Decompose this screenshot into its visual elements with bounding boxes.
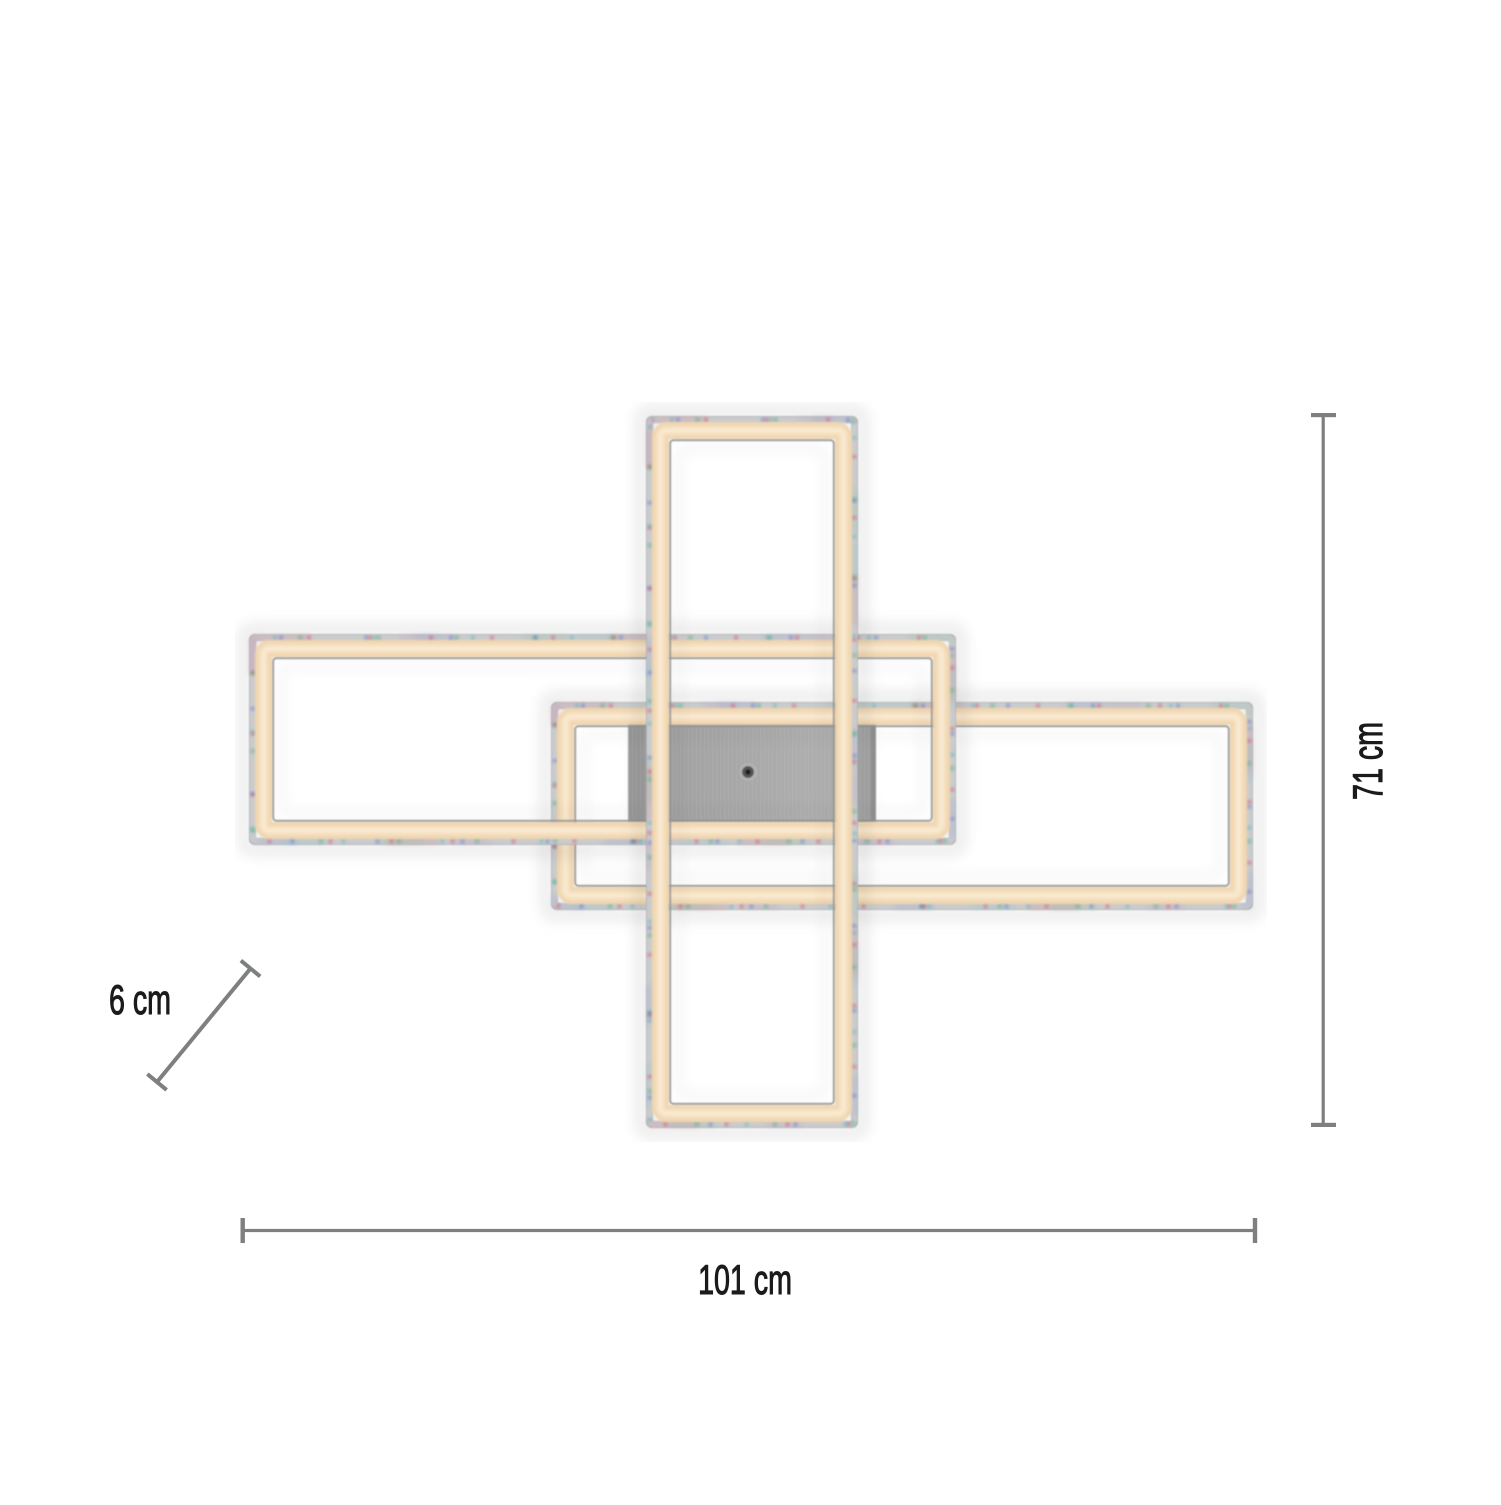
- svg-text:6 cm: 6 cm: [109, 977, 171, 1024]
- svg-text:71 cm: 71 cm: [1345, 722, 1392, 800]
- svg-text:101 cm: 101 cm: [698, 1257, 792, 1304]
